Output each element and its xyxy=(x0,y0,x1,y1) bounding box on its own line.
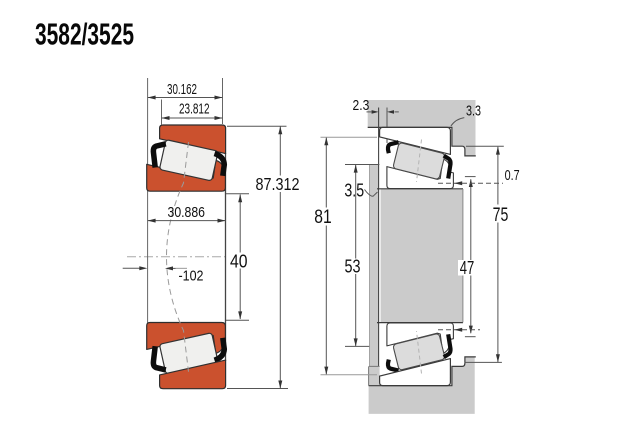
svg-text:3.5: 3.5 xyxy=(344,180,364,200)
svg-text:87.312: 87.312 xyxy=(256,174,300,194)
svg-text:-102: -102 xyxy=(179,267,204,284)
svg-text:23.812: 23.812 xyxy=(179,101,210,118)
svg-text:3.3: 3.3 xyxy=(466,103,481,120)
svg-text:47: 47 xyxy=(460,257,475,278)
svg-text:3582/3525: 3582/3525 xyxy=(35,17,134,52)
svg-text:0.7: 0.7 xyxy=(505,167,520,184)
svg-text:2.3: 2.3 xyxy=(353,97,370,114)
svg-text:53: 53 xyxy=(345,256,361,277)
svg-text:75: 75 xyxy=(493,205,509,226)
svg-text:40: 40 xyxy=(230,250,248,271)
svg-text:30.886: 30.886 xyxy=(168,204,206,221)
svg-text:81: 81 xyxy=(314,207,331,228)
svg-text:30.162: 30.162 xyxy=(167,81,197,98)
